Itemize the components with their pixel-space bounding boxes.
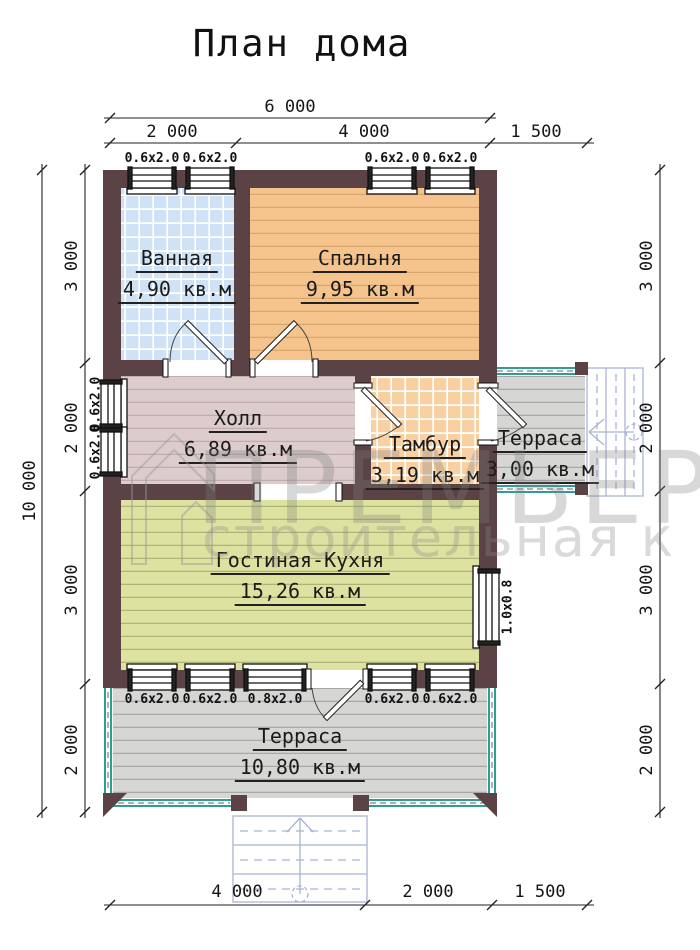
window [425, 167, 475, 194]
dim-right-seg: 3 000 [637, 240, 657, 291]
room-area: 10,80 кв.м [235, 755, 365, 782]
room-area: 15,26 кв.м [235, 579, 365, 606]
dim-top-seg: 2 000 [146, 122, 197, 142]
window-size-label: 0.6x2.0 [89, 377, 104, 432]
dim-bottom-seg: 4 000 [211, 882, 262, 902]
window [127, 664, 177, 691]
dim-left-seg: 3 000 [62, 564, 82, 615]
dim-left-seg: 3 000 [62, 240, 82, 291]
dim-bottom-seg: 2 000 [402, 882, 453, 902]
window [367, 167, 417, 194]
windows-right [473, 566, 500, 648]
room-name: Ванная [136, 246, 218, 273]
window-size-label: 0.6x2.0 [125, 151, 180, 166]
window [100, 379, 127, 429]
room-label-bathroom: Ванная 4,90 кв.м [118, 246, 236, 304]
window-size-label: 0.6x2.0 [423, 151, 478, 166]
window [100, 427, 127, 477]
dim-right-seg: 3 000 [637, 564, 657, 615]
window-size-label: 1.0x0.8 [501, 580, 516, 635]
dim-top-total: 6 000 [264, 97, 315, 117]
window-size-label: 0.6x2.0 [423, 692, 478, 707]
window-size-label: 0.6x2.0 [183, 151, 238, 166]
window [367, 664, 417, 691]
window-size-label: 0.6x2.0 [365, 692, 420, 707]
dim-right-seg: 2 000 [637, 724, 657, 775]
room-label-bedroom: Спальня 9,95 кв.м [301, 246, 419, 304]
room-label-terrace-bottom: Терраса 10,80 кв.м [235, 724, 365, 782]
dim-top-seg: 1 500 [510, 122, 561, 142]
room-name: Терраса [253, 724, 347, 751]
floor-plan-page: ПРЕМЬЕР строительная к План дома Ванная … [0, 0, 700, 950]
dim-left-seg: 2 000 [62, 724, 82, 775]
dim-top-seg: 4 000 [338, 122, 389, 142]
dim-bottom-seg: 1 500 [514, 882, 565, 902]
room-name: Спальня [313, 246, 407, 273]
window-size-label: 0.6x2.0 [89, 425, 104, 480]
window-size-label: 0.8x2.0 [248, 692, 303, 707]
dim-left-total: 10 000 [20, 460, 40, 521]
window [243, 664, 307, 691]
window-size-label: 0.6x2.0 [183, 692, 238, 707]
window [185, 664, 235, 691]
window [473, 566, 500, 648]
plan-title: План дома [193, 22, 411, 65]
room-area: 4,90 кв.м [118, 277, 236, 304]
room-area: 9,95 кв.м [301, 277, 419, 304]
watermark-subtitle-text: строительная к [202, 506, 675, 569]
windows-left [100, 379, 127, 477]
dim-left-seg: 2 000 [62, 402, 82, 453]
window-size-label: 0.6x2.0 [125, 692, 180, 707]
window [425, 664, 475, 691]
window [127, 167, 177, 194]
window [185, 167, 235, 194]
window-size-label: 0.6x2.0 [365, 151, 420, 166]
